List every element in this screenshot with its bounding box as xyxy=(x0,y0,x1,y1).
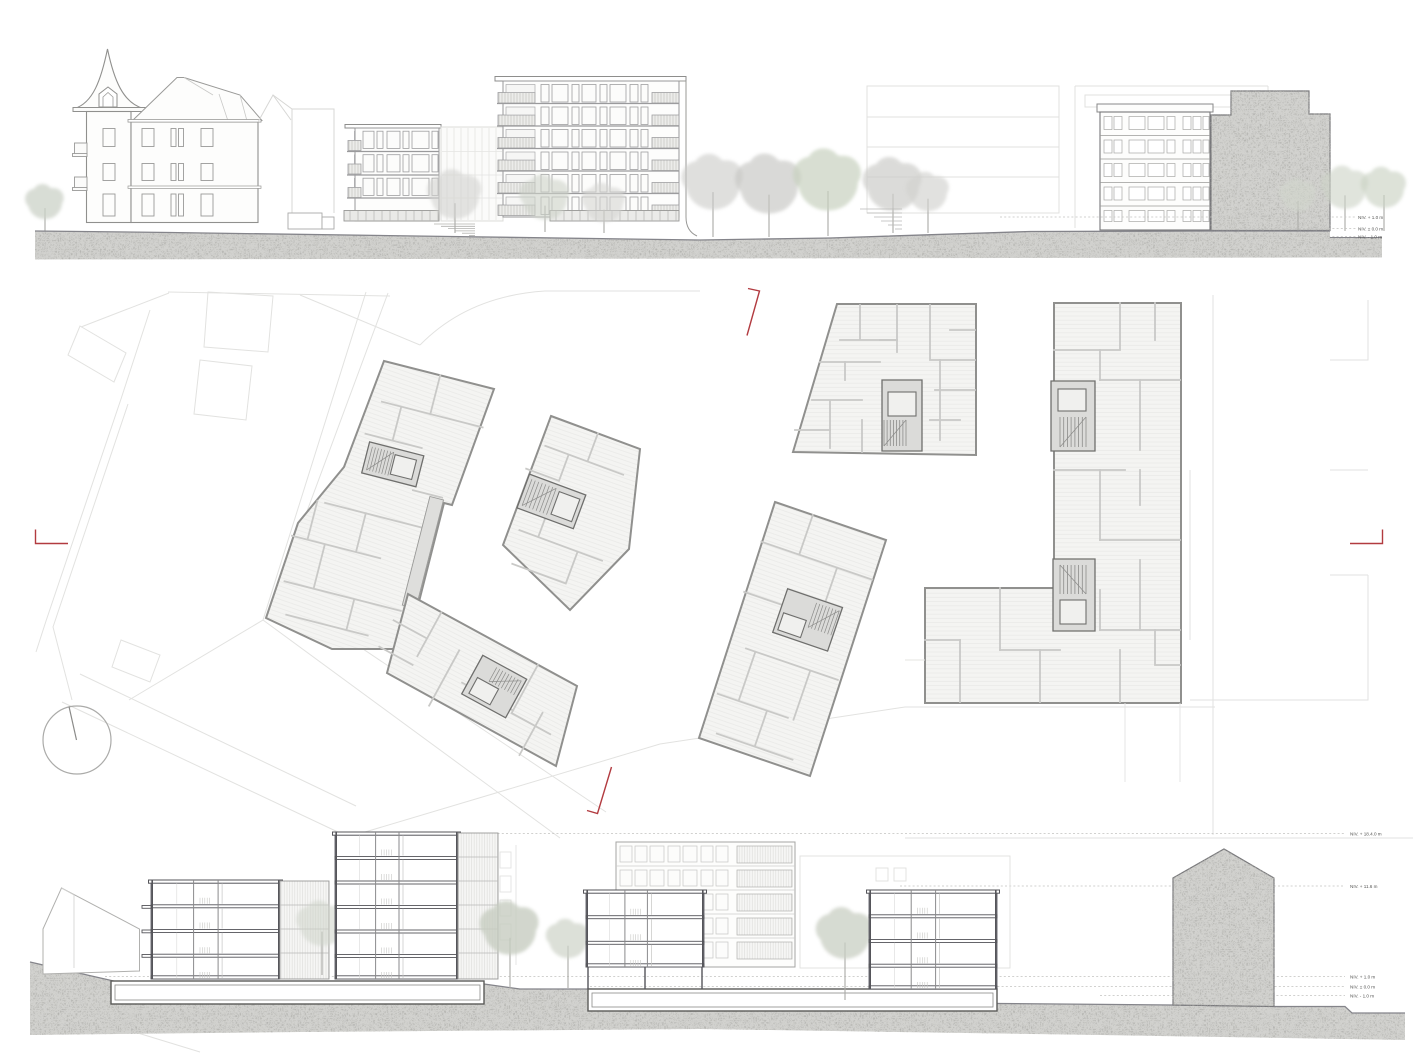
svg-text:NIV. ± 0.0 m: NIV. ± 0.0 m xyxy=(1358,227,1383,232)
svg-text:NIV. - 1.0 m: NIV. - 1.0 m xyxy=(1358,235,1382,240)
svg-text:NIV. ± 0.0 m: NIV. ± 0.0 m xyxy=(1350,985,1375,990)
svg-text:NIV. - 1.0 m: NIV. - 1.0 m xyxy=(1350,994,1374,999)
svg-text:NIV. + 11.6 m: NIV. + 11.6 m xyxy=(1350,884,1378,889)
svg-text:NIV. + 1.0 m: NIV. + 1.0 m xyxy=(1350,975,1375,980)
svg-text:NIV. + 1.0 m: NIV. + 1.0 m xyxy=(1358,215,1383,220)
svg-text:NIV. + 18.4.0 m: NIV. + 18.4.0 m xyxy=(1350,832,1382,837)
